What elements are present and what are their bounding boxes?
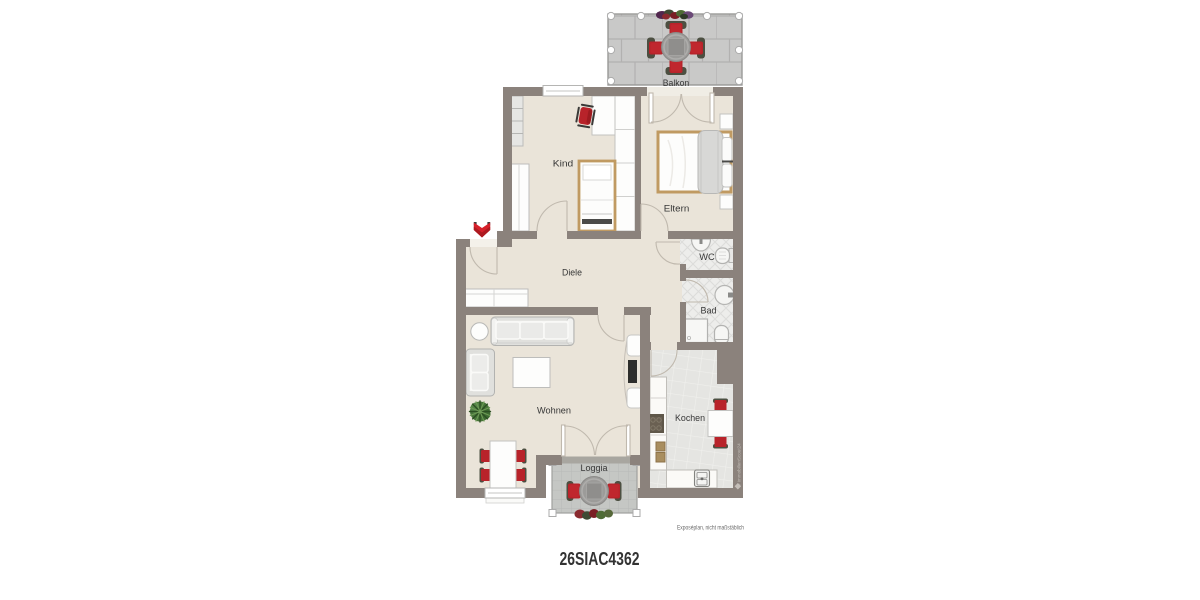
svg-text:Wohnen: Wohnen: [537, 406, 571, 416]
svg-text:Exposéplan, nicht maßstäblich: Exposéplan, nicht maßstäblich: [677, 526, 744, 532]
svg-text:Kind: Kind: [553, 159, 574, 169]
svg-text:Bad: Bad: [701, 306, 717, 316]
svg-text:© ImmobilienScout24: © ImmobilienScout24: [736, 443, 742, 487]
svg-text:Kochen: Kochen: [675, 413, 705, 423]
svg-text:WC: WC: [699, 252, 715, 262]
svg-text:Loggia: Loggia: [581, 463, 608, 473]
svg-text:Eltern: Eltern: [664, 204, 690, 214]
svg-text:Balkon: Balkon: [663, 78, 690, 88]
svg-text:26SIAC4362: 26SIAC4362: [560, 549, 640, 569]
svg-text:Diele: Diele: [562, 268, 582, 278]
